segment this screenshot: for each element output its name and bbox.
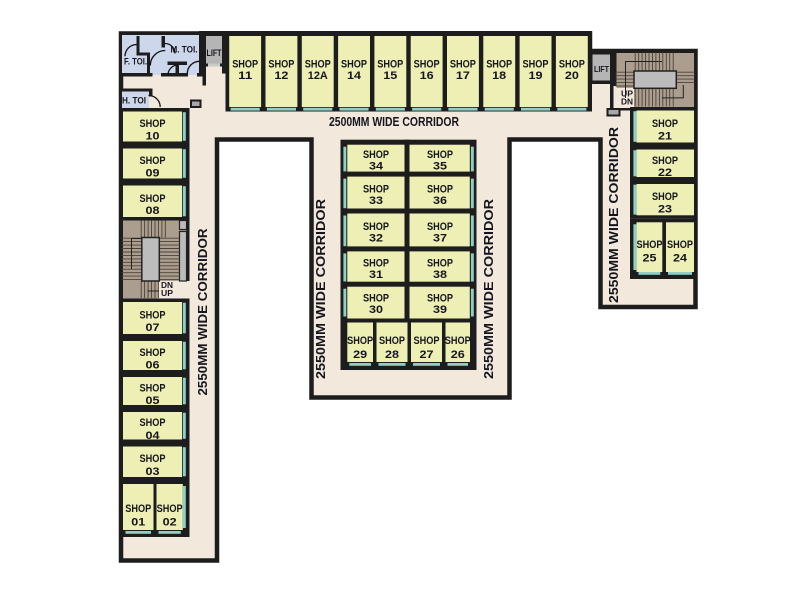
svg-text:SHOP: SHOP	[559, 59, 585, 71]
svg-text:SHOP: SHOP	[363, 221, 389, 233]
svg-text:30: 30	[369, 304, 383, 316]
svg-text:21: 21	[658, 131, 672, 143]
svg-text:SHOP: SHOP	[305, 59, 331, 71]
svg-text:26: 26	[451, 349, 465, 361]
svg-text:SHOP: SHOP	[414, 335, 440, 347]
svg-text:31: 31	[369, 269, 383, 281]
svg-text:11: 11	[238, 70, 252, 82]
svg-text:12A: 12A	[308, 70, 328, 82]
svg-text:SHOP: SHOP	[652, 155, 678, 167]
svg-text:SHOP: SHOP	[652, 191, 678, 203]
svg-text:SHOP: SHOP	[486, 59, 512, 71]
svg-text:03: 03	[146, 466, 160, 478]
svg-text:UP: UP	[161, 289, 174, 298]
svg-text:2550MM WIDE CORRIDOR: 2550MM WIDE CORRIDOR	[313, 198, 328, 379]
svg-text:14: 14	[347, 70, 362, 82]
svg-text:19: 19	[529, 70, 543, 82]
svg-text:LIFT: LIFT	[594, 64, 610, 74]
svg-text:18: 18	[492, 70, 506, 82]
svg-text:24: 24	[673, 253, 688, 265]
svg-text:SHOP: SHOP	[667, 239, 693, 251]
svg-text:SHOP: SHOP	[140, 155, 166, 167]
svg-text:37: 37	[433, 232, 447, 244]
svg-text:35: 35	[433, 161, 447, 173]
svg-text:17: 17	[456, 70, 470, 82]
svg-text:04: 04	[146, 430, 161, 442]
svg-text:SHOP: SHOP	[232, 59, 258, 71]
svg-text:SHOP: SHOP	[427, 258, 453, 270]
svg-text:05: 05	[146, 395, 160, 407]
svg-text:SHOP: SHOP	[140, 347, 166, 359]
svg-text:08: 08	[146, 205, 160, 217]
svg-text:02: 02	[163, 517, 177, 529]
svg-text:15: 15	[383, 70, 397, 82]
svg-text:28: 28	[385, 349, 399, 361]
svg-text:27: 27	[420, 349, 434, 361]
svg-text:38: 38	[433, 269, 447, 281]
svg-text:SHOP: SHOP	[414, 59, 440, 71]
svg-text:SHOP: SHOP	[347, 335, 373, 347]
svg-text:SHOP: SHOP	[445, 335, 471, 347]
svg-text:2550MM WIDE CORRIDOR: 2550MM WIDE CORRIDOR	[481, 198, 496, 379]
svg-text:SHOP: SHOP	[363, 149, 389, 161]
svg-text:SHOP: SHOP	[450, 59, 476, 71]
svg-text:2500MM WIDE CORRIDOR: 2500MM WIDE CORRIDOR	[329, 115, 459, 129]
svg-text:33: 33	[369, 195, 383, 207]
svg-text:10: 10	[146, 131, 160, 143]
svg-text:39: 39	[433, 304, 447, 316]
svg-text:SHOP: SHOP	[363, 258, 389, 270]
svg-text:2550MM WIDE CORRIDOR: 2550MM WIDE CORRIDOR	[195, 228, 210, 396]
svg-text:SHOP: SHOP	[341, 59, 367, 71]
svg-text:32: 32	[369, 232, 383, 244]
svg-text:LIFT: LIFT	[207, 48, 222, 58]
svg-text:M. TOI.: M. TOI.	[171, 45, 198, 55]
svg-text:SHOP: SHOP	[427, 149, 453, 161]
svg-text:34: 34	[369, 161, 384, 173]
svg-text:09: 09	[146, 168, 160, 180]
svg-text:SHOP: SHOP	[427, 184, 453, 196]
svg-text:SHOP: SHOP	[140, 453, 166, 465]
svg-text:07: 07	[146, 322, 160, 334]
svg-text:22: 22	[658, 167, 672, 179]
svg-text:SHOP: SHOP	[125, 503, 151, 515]
svg-text:SHOP: SHOP	[363, 184, 389, 196]
svg-text:12: 12	[274, 70, 288, 82]
svg-text:06: 06	[146, 360, 160, 372]
svg-text:SHOP: SHOP	[363, 293, 389, 305]
svg-text:2550MM WIDE CORRIDOR: 2550MM WIDE CORRIDOR	[606, 126, 621, 303]
svg-text:H. TOI: H. TOI	[122, 96, 146, 106]
svg-text:SHOP: SHOP	[140, 310, 166, 322]
svg-text:F. TOI.: F. TOI.	[124, 57, 147, 67]
svg-text:SHOP: SHOP	[268, 59, 294, 71]
svg-text:SHOP: SHOP	[157, 503, 183, 515]
svg-text:SHOP: SHOP	[523, 59, 549, 71]
svg-text:36: 36	[433, 195, 447, 207]
svg-text:25: 25	[643, 253, 657, 265]
svg-text:DN: DN	[621, 98, 633, 107]
svg-text:SHOP: SHOP	[652, 118, 678, 130]
svg-text:20: 20	[565, 70, 579, 82]
svg-text:01: 01	[131, 517, 145, 529]
svg-text:SHOP: SHOP	[427, 293, 453, 305]
svg-text:SHOP: SHOP	[140, 417, 166, 429]
svg-text:SHOP: SHOP	[379, 335, 405, 347]
svg-text:16: 16	[420, 70, 434, 82]
svg-text:29: 29	[353, 349, 367, 361]
svg-text:SHOP: SHOP	[140, 118, 166, 130]
svg-text:SHOP: SHOP	[140, 383, 166, 395]
svg-text:23: 23	[658, 204, 672, 216]
svg-text:SHOP: SHOP	[377, 59, 403, 71]
svg-text:SHOP: SHOP	[427, 221, 453, 233]
svg-text:SHOP: SHOP	[637, 239, 663, 251]
svg-text:SHOP: SHOP	[140, 193, 166, 205]
